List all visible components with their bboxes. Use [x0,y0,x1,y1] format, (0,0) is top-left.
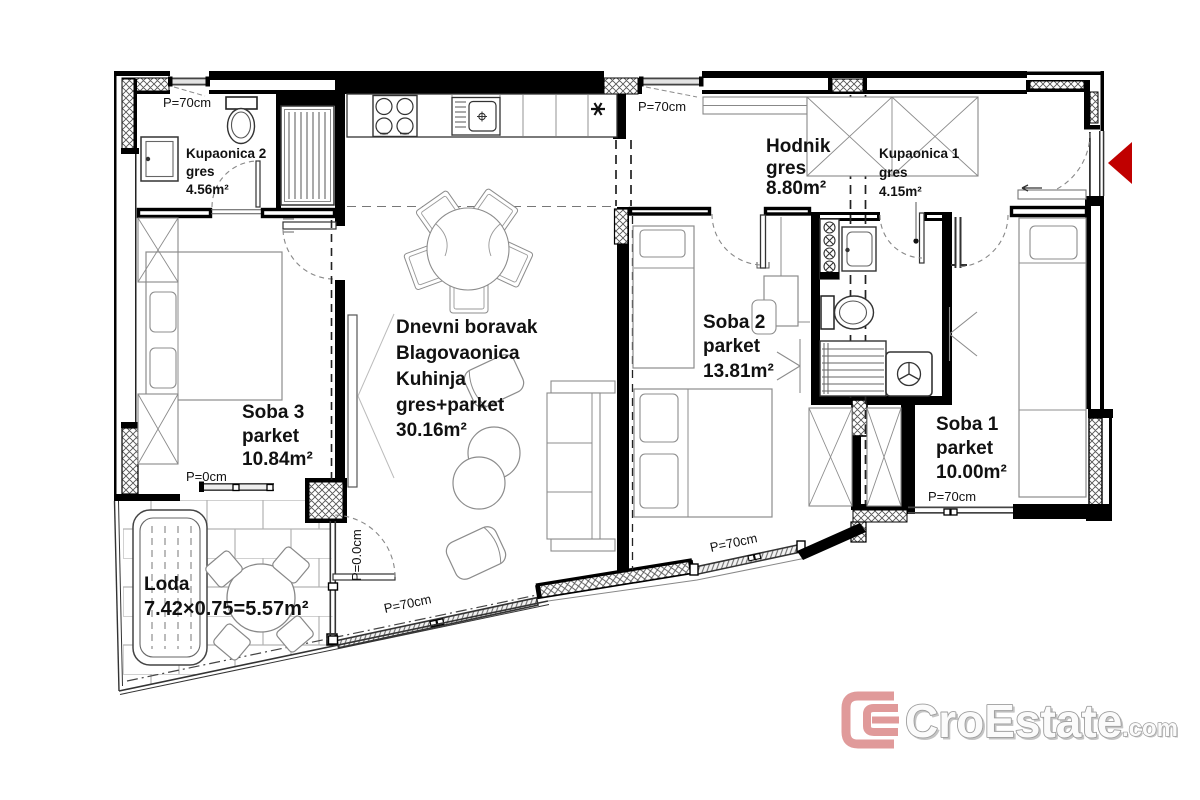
svg-text:P=0cm: P=0cm [186,469,227,484]
svg-text:Soba 3: Soba 3 [242,402,304,423]
svg-text:Soba 1: Soba 1 [936,414,999,435]
svg-text:parket: parket [703,336,761,357]
svg-text:gres: gres [186,164,215,179]
svg-text:10.84m²: 10.84m² [242,449,313,470]
svg-text:Kupaonica 1: Kupaonica 1 [879,146,960,161]
svg-text:13.81m²: 13.81m² [703,361,774,382]
svg-text:Dnevni boravak: Dnevni boravak [396,317,538,338]
svg-text:gres: gres [879,165,908,180]
svg-text:4.15m²: 4.15m² [879,184,922,199]
svg-text:7.42×0.75=5.57m²: 7.42×0.75=5.57m² [144,598,309,620]
svg-text:10.00m²: 10.00m² [936,462,1007,483]
svg-text:Loda: Loda [144,574,190,595]
svg-text:Soba 2: Soba 2 [703,312,765,333]
svg-text:P=70cm: P=70cm [163,95,211,110]
svg-text:gres+parket: gres+parket [396,395,505,416]
svg-text:Hodnik: Hodnik [766,136,831,157]
svg-text:parket: parket [936,438,994,459]
svg-text:Kuhinja: Kuhinja [396,369,466,390]
svg-text:P=70cm: P=70cm [638,99,686,114]
svg-text:.com: .com [1122,715,1178,742]
svg-text:parket: parket [242,426,300,447]
svg-text:30.16m²: 30.16m² [396,420,467,441]
svg-text:P=0.0cm: P=0.0cm [349,529,364,581]
svg-text:P=70cm: P=70cm [928,489,976,504]
svg-text:CroEstate: CroEstate [905,695,1122,747]
svg-text:4.56m²: 4.56m² [186,182,229,197]
svg-text:Blagovaonica: Blagovaonica [396,343,520,364]
svg-text:gres: gres [766,158,806,179]
svg-text:Kupaonica 2: Kupaonica 2 [186,146,266,161]
svg-text:8.80m²: 8.80m² [766,178,826,199]
